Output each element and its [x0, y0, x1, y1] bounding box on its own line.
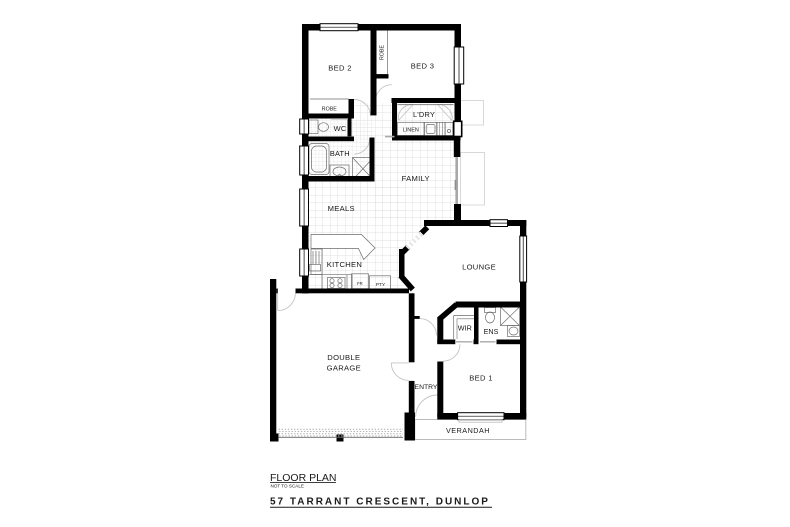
svg-text:ROBE: ROBE	[322, 106, 337, 112]
svg-text:57 TARRANT CRESCENT, DUNLOP: 57 TARRANT CRESCENT, DUNLOP	[270, 496, 490, 507]
svg-text:KITCHEN: KITCHEN	[327, 260, 362, 269]
svg-text:ENTRY: ENTRY	[415, 384, 438, 391]
svg-text:BED 1: BED 1	[469, 373, 492, 382]
svg-text:VERANDAH: VERANDAH	[446, 426, 490, 435]
svg-text:ENS: ENS	[484, 327, 499, 336]
svg-text:FAMILY: FAMILY	[402, 174, 430, 183]
svg-text:FR: FR	[357, 281, 363, 286]
svg-text:PTY: PTY	[376, 282, 386, 288]
svg-text:BATH: BATH	[330, 149, 350, 158]
svg-text:NOT TO SCALE: NOT TO SCALE	[271, 483, 304, 488]
svg-text:MEALS: MEALS	[328, 204, 355, 213]
svg-text:GARAGE: GARAGE	[327, 363, 361, 372]
svg-text:BED 2: BED 2	[328, 64, 351, 73]
svg-text:ROBE: ROBE	[380, 45, 386, 60]
svg-text:BED 3: BED 3	[411, 62, 434, 71]
svg-text:LOUNGE: LOUNGE	[462, 263, 496, 272]
svg-text:L'DRY: L'DRY	[413, 110, 435, 119]
svg-text:WIR: WIR	[458, 324, 472, 333]
svg-text:WC: WC	[334, 124, 347, 133]
svg-text:LINEN: LINEN	[403, 127, 419, 133]
svg-text:DOUBLE: DOUBLE	[327, 353, 360, 362]
